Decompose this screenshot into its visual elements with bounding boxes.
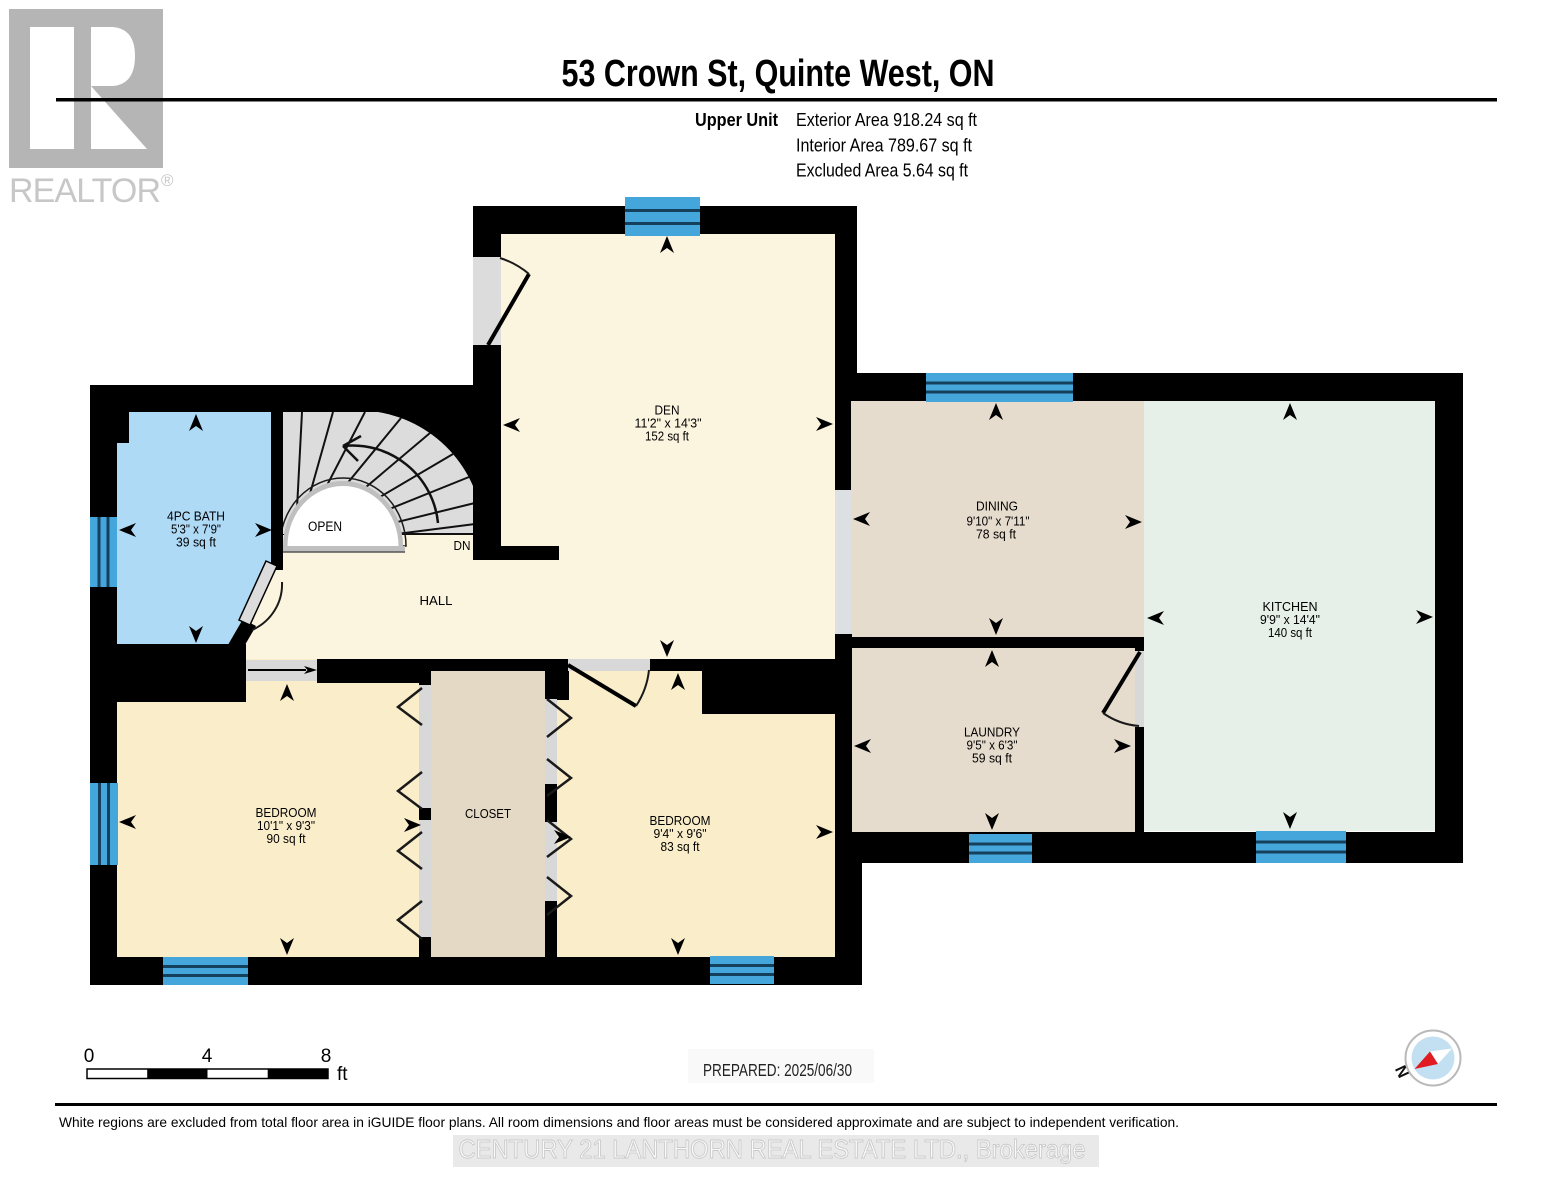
- svg-text:PREPARED: 2025/06/30: PREPARED: 2025/06/30: [703, 1060, 852, 1080]
- svg-text:OPEN: OPEN: [308, 519, 342, 534]
- svg-text:HALL: HALL: [420, 593, 453, 608]
- svg-text:CENTURY 21 LANTHORN REAL ESTAT: CENTURY 21 LANTHORN REAL ESTATE LTD., Br…: [459, 1134, 1086, 1164]
- svg-text:90 sq ft: 90 sq ft: [267, 831, 306, 846]
- svg-text:39 sq ft: 39 sq ft: [176, 535, 216, 550]
- svg-text:4: 4: [202, 1046, 213, 1067]
- svg-text:53 Crown St, Quinte West, ON: 53 Crown St, Quinte West, ON: [562, 53, 995, 95]
- svg-text:140 sq ft: 140 sq ft: [1268, 625, 1312, 640]
- svg-text:Exterior Area 918.24 sq ft: Exterior Area 918.24 sq ft: [796, 110, 977, 130]
- svg-text:8: 8: [321, 1046, 332, 1067]
- svg-text:152 sq ft: 152 sq ft: [645, 429, 689, 444]
- svg-text:DINING: DINING: [976, 499, 1018, 514]
- svg-text:Upper Unit: Upper Unit: [695, 110, 778, 130]
- svg-text:Interior Area 789.67 sq ft: Interior Area 789.67 sq ft: [796, 136, 972, 156]
- svg-text:ft: ft: [337, 1064, 348, 1085]
- svg-text:59 sq ft: 59 sq ft: [972, 751, 1012, 766]
- svg-text:0: 0: [84, 1046, 95, 1067]
- svg-text:White regions are excluded fro: White regions are excluded from total fl…: [59, 1114, 1179, 1130]
- svg-text:®: ®: [161, 171, 174, 190]
- svg-text:Excluded Area 5.64 sq ft: Excluded Area 5.64 sq ft: [796, 161, 968, 181]
- svg-text:78 sq ft: 78 sq ft: [976, 527, 1016, 542]
- svg-text:DN: DN: [454, 538, 471, 553]
- svg-text:CLOSET: CLOSET: [465, 806, 511, 821]
- svg-text:REALTOR: REALTOR: [9, 172, 161, 210]
- svg-text:83 sq ft: 83 sq ft: [661, 839, 700, 854]
